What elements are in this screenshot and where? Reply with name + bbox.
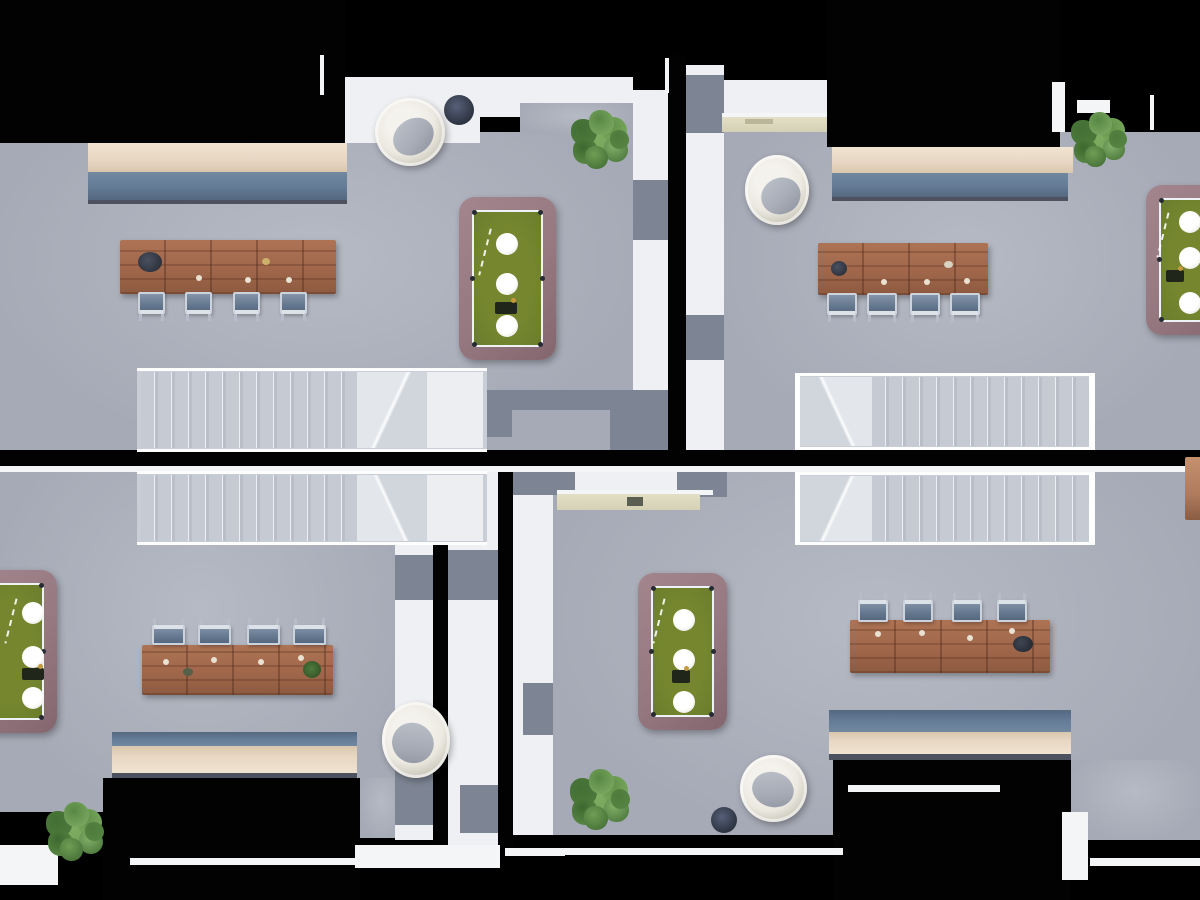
staircase-top-left-rail: [137, 368, 487, 371]
pool-ball-light: [496, 273, 518, 295]
staircase-bottom-left-landing: [427, 475, 483, 541]
pool-pocket: [1159, 317, 1164, 322]
wall-cap: [1062, 812, 1088, 880]
kitchen-counter-top-bottom-right: [829, 732, 1071, 754]
pool-table-item: [1166, 270, 1184, 282]
dining-chair-leg: [1023, 593, 1026, 600]
sideboard-shelf-top-right: [722, 117, 827, 132]
table-item: [875, 631, 881, 637]
staircase-bottom-left-rail: [137, 542, 487, 545]
staircase-bottom-left-steps: [141, 475, 357, 541]
corridor-tile-gray: [610, 390, 668, 450]
wall-cap: [1150, 95, 1154, 130]
pool-table-item: [672, 670, 690, 683]
staircase-bottom-right-rail: [795, 472, 1095, 475]
dining-chair-leg: [256, 314, 259, 321]
table-item: [1009, 628, 1015, 634]
dining-chair-leg: [181, 618, 184, 625]
table-item: [258, 659, 264, 665]
dining-chair-back: [295, 625, 324, 629]
wall-segment: [668, 55, 686, 450]
dining-chair-leg: [853, 315, 856, 322]
pool-ball-light: [1179, 211, 1200, 233]
dining-chair-back: [187, 310, 210, 314]
dining-chair-leg: [227, 618, 230, 625]
wall-cap: [560, 848, 843, 855]
dining-chair-leg: [322, 618, 325, 625]
pool-pocket: [1159, 198, 1164, 203]
plant-bottom-left-foliage: [85, 822, 104, 841]
wall-segment: [0, 450, 1200, 466]
plant-bottom-left-foliage: [60, 838, 83, 861]
corridor-tile-white: [724, 80, 827, 117]
unit-floor: [1071, 760, 1200, 840]
dining-chair-back: [154, 625, 183, 629]
pool-table-item: [22, 668, 44, 680]
plant-top-right-foliage: [1109, 130, 1127, 148]
table-item: [138, 252, 162, 272]
dining-chair-leg: [884, 593, 887, 600]
corridor-tile-gray: [395, 770, 433, 825]
table-item: [1013, 636, 1033, 652]
dining-chair-leg: [828, 315, 831, 322]
wall-segment: [498, 472, 513, 848]
plant-bottom-left-foliage: [64, 802, 88, 826]
wood-bench-sliver: [1185, 457, 1200, 520]
corridor-tile-white: [513, 472, 553, 835]
wall-cap: [665, 58, 669, 93]
wall-segment: [103, 778, 360, 900]
staircase-top-right-rail: [795, 373, 1095, 376]
kitchen-counter-shadow-top-left: [88, 200, 347, 204]
dining-chair-leg: [893, 315, 896, 322]
pool-pocket: [472, 342, 477, 347]
dining-chair-leg: [303, 314, 306, 321]
staircase-top-right-rail: [795, 447, 1095, 450]
staircase-bottom-right-steps: [872, 476, 1089, 541]
pool-pocket: [538, 210, 543, 215]
table-item: [964, 278, 970, 284]
table-item: [303, 661, 321, 678]
table-item: [183, 668, 193, 676]
staircase-top-left-winder: [357, 372, 427, 448]
pool-table-item: [495, 302, 517, 314]
pool-pocket: [1157, 257, 1162, 262]
dining-chair-leg: [929, 593, 932, 600]
dining-chair-back: [905, 600, 931, 604]
table-item: [163, 659, 169, 665]
wall-cap: [848, 785, 1000, 792]
pool-table-item-accent: [684, 666, 689, 671]
pool-pocket: [709, 712, 714, 717]
dining-chair-leg: [161, 314, 164, 321]
kitchen-counter-top-top-left: [88, 143, 347, 172]
pool-pocket: [538, 342, 543, 347]
corridor-tile-gray: [395, 555, 433, 600]
kitchen-counter-front-bottom-left: [112, 732, 357, 746]
dining-chair-leg: [234, 314, 237, 321]
wall-segment: [0, 0, 345, 143]
table-item: [196, 275, 202, 281]
pool-pocket: [649, 649, 654, 654]
staircase-top-left-steps: [141, 372, 357, 448]
table-item: [262, 258, 270, 265]
dining-chair-back: [200, 625, 229, 629]
kitchen-counter-top-top-right: [832, 147, 1073, 173]
dining-chair-leg: [953, 593, 956, 600]
table-item: [286, 277, 292, 283]
kitchen-counter-front-bottom-right: [829, 710, 1071, 732]
pool-table-item-accent: [1178, 266, 1183, 271]
corridor-tile-gray: [686, 315, 724, 360]
corridor-tile-gray: [633, 180, 668, 240]
wall-cap: [505, 848, 565, 856]
staircase-top-right-winder: [800, 377, 872, 446]
dining-chair-leg: [951, 315, 954, 322]
pool-table-item-accent: [511, 298, 516, 303]
corridor-tile-white: [520, 77, 633, 103]
corridor-tile-gray: [448, 550, 498, 600]
planter-pot: [711, 807, 737, 833]
kitchen-counter-front-top-right: [832, 173, 1068, 197]
wall-cap: [1077, 100, 1110, 113]
dining-chair-leg: [978, 593, 981, 600]
pool-pocket: [39, 583, 44, 588]
pool-pocket: [651, 586, 656, 591]
pool-pocket: [709, 586, 714, 591]
pool-pocket: [540, 276, 545, 281]
floor-plan-render: [0, 0, 1200, 900]
plant-top-right-foliage: [1085, 146, 1107, 168]
dining-chair-back: [869, 311, 895, 315]
pool-ball-light: [22, 602, 44, 624]
pool-table-item-accent: [38, 664, 43, 669]
pool-ball-light: [496, 315, 518, 337]
pool-ball-light: [673, 691, 695, 713]
wall-cap: [0, 845, 58, 885]
dining-chair-leg: [936, 315, 939, 322]
kitchen-counter-shadow-bottom-right: [829, 754, 1071, 760]
dining-chair-back: [282, 310, 305, 314]
wall-cap: [320, 55, 324, 95]
staircase-bottom-left-winder: [357, 475, 427, 541]
pool-pocket: [711, 649, 716, 654]
shelf-item: [627, 497, 643, 506]
table-item: [211, 657, 217, 663]
pool-ball-light: [496, 233, 518, 255]
dining-chair-leg: [199, 618, 202, 625]
dining-chair-back: [952, 311, 978, 315]
planter-pot: [444, 95, 474, 125]
table-item: [944, 261, 953, 268]
table-item: [881, 279, 887, 285]
dining-chair-leg: [294, 618, 297, 625]
dining-chair-leg: [859, 593, 862, 600]
corridor-tile-gray: [686, 75, 724, 133]
dining-chair-back: [954, 600, 980, 604]
pool-pocket: [470, 276, 475, 281]
wall-cap: [130, 858, 355, 865]
pool-pocket: [39, 715, 44, 720]
dining-chair-back: [860, 600, 886, 604]
dining-chair-back: [912, 311, 938, 315]
staircase-top-left-landing: [427, 372, 483, 448]
wall-cap: [1090, 858, 1200, 866]
dining-chair-leg: [281, 314, 284, 321]
staircase-bottom-left-rail: [137, 471, 487, 474]
table-item: [245, 277, 251, 283]
dining-chair-leg: [998, 593, 1001, 600]
dining-chair-back: [235, 310, 258, 314]
dining-chair-leg: [276, 618, 279, 625]
pool-ball-light: [22, 687, 44, 709]
dining-chair-leg: [868, 315, 871, 322]
corridor-tile-gray: [460, 785, 498, 833]
table-item: [919, 630, 925, 636]
dining-chair-leg: [208, 314, 211, 321]
dining-chair-leg: [139, 314, 142, 321]
staircase-bottom-right-rail: [795, 542, 1095, 545]
plant-top-left-foliage: [589, 110, 613, 134]
dining-chair-back: [829, 311, 855, 315]
dining-chair-leg: [248, 618, 251, 625]
pool-ball-light: [1179, 292, 1200, 314]
plant-top-right-foliage: [1089, 112, 1112, 135]
corridor-tile-gray: [523, 683, 553, 735]
staircase-top-right-edge: [1089, 376, 1095, 447]
staircase-bottom-right-edge: [1089, 475, 1095, 542]
staircase-top-left-rail: [137, 449, 487, 452]
table-item: [831, 261, 847, 276]
plant-top-left-foliage: [585, 146, 608, 169]
pool-ball-light: [673, 609, 695, 631]
kitchen-counter-top-bottom-left: [112, 746, 357, 773]
wall-cap: [1052, 82, 1065, 132]
dining-chair-leg: [904, 593, 907, 600]
table-item: [924, 279, 930, 285]
pool-pocket: [651, 712, 656, 717]
table-item: [298, 655, 304, 661]
dining-chair-back: [249, 625, 278, 629]
staircase-bottom-right-winder: [800, 476, 872, 541]
plant-bottom-right-foliage: [584, 806, 608, 830]
corridor-tile-gray: [512, 390, 610, 410]
shelf-item: [745, 119, 773, 124]
dining-chair-back: [999, 600, 1025, 604]
wall-cap: [355, 845, 500, 868]
kitchen-counter-shadow-top-right: [832, 197, 1068, 201]
dining-chair-leg: [153, 618, 156, 625]
staircase-top-right-steps: [872, 377, 1089, 446]
kitchen-counter-front-top-left: [88, 172, 347, 200]
pool-pocket: [472, 210, 477, 215]
dining-chair-leg: [976, 315, 979, 322]
wall-segment: [827, 0, 1060, 147]
dining-chair-leg: [186, 314, 189, 321]
table-item: [967, 635, 973, 641]
kitchen-counter-shadow-bottom-left: [112, 773, 357, 778]
dining-chair-leg: [911, 315, 914, 322]
wall-segment: [833, 760, 1071, 900]
plant-top-left-foliage: [610, 130, 629, 149]
dining-chair-back: [140, 310, 163, 314]
